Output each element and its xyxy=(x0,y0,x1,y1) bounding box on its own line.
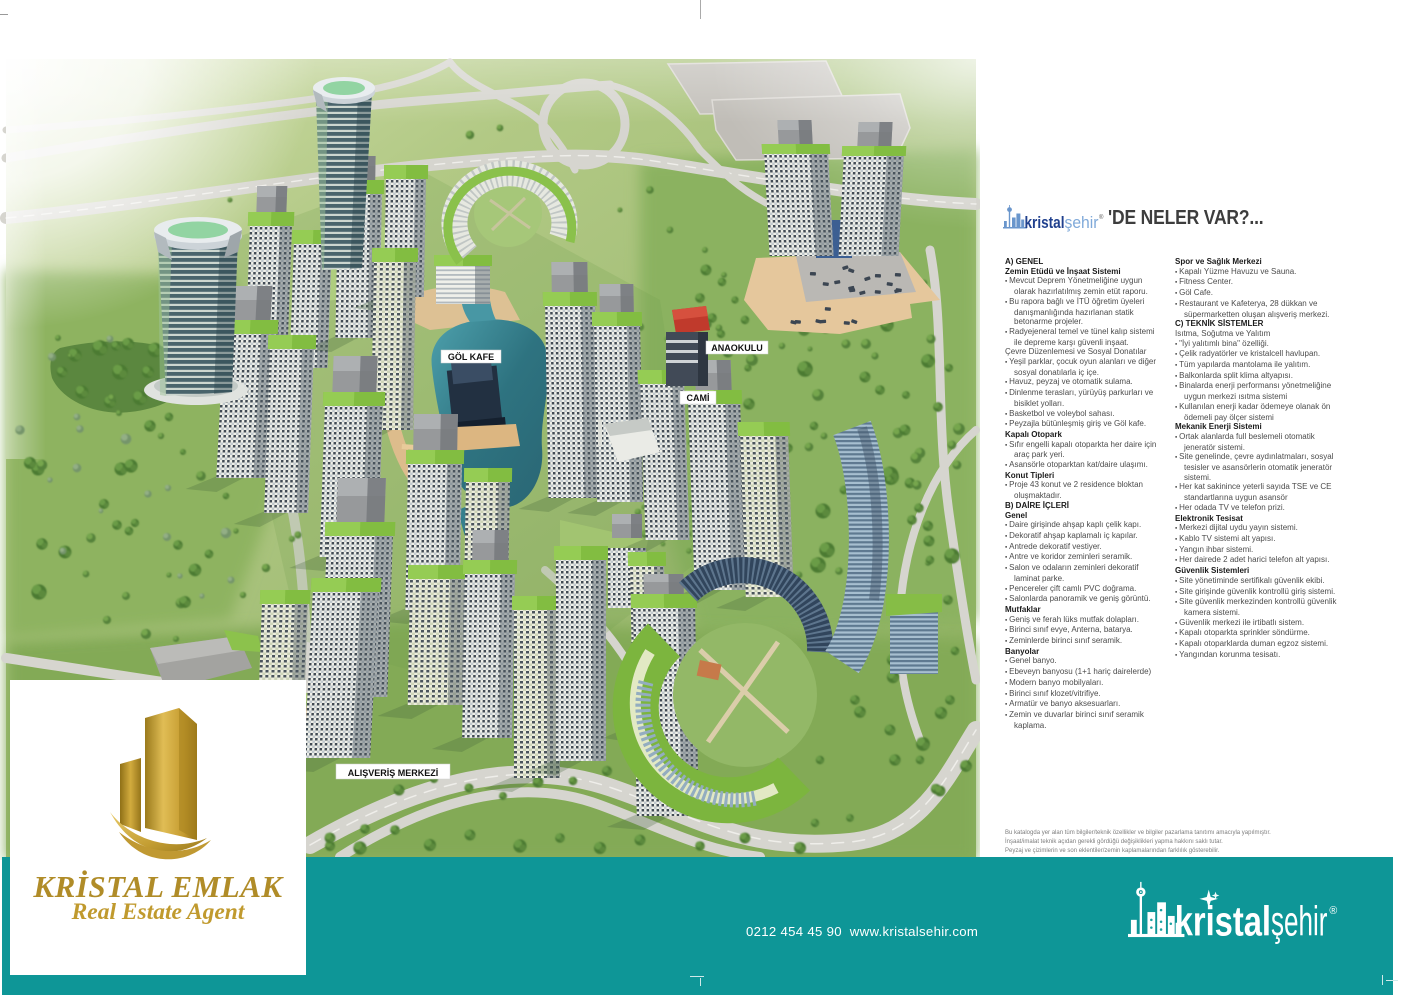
svg-text:kristal: kristal xyxy=(1175,897,1271,944)
svg-text:GÖL KAFE: GÖL KAFE xyxy=(448,352,494,362)
svg-text:®: ® xyxy=(1099,214,1104,221)
svg-text:ANAOKULU: ANAOKULU xyxy=(711,343,763,353)
svg-text:CAMİ: CAMİ xyxy=(687,393,710,403)
svg-text:şehir: şehir xyxy=(1271,897,1327,944)
svg-text:şehir: şehir xyxy=(1065,213,1099,232)
svg-text:®: ® xyxy=(1329,905,1337,917)
svg-text:ALIŞVERİŞ MERKEZİ: ALIŞVERİŞ MERKEZİ xyxy=(348,768,439,778)
svg-text:kristal: kristal xyxy=(1025,213,1065,232)
